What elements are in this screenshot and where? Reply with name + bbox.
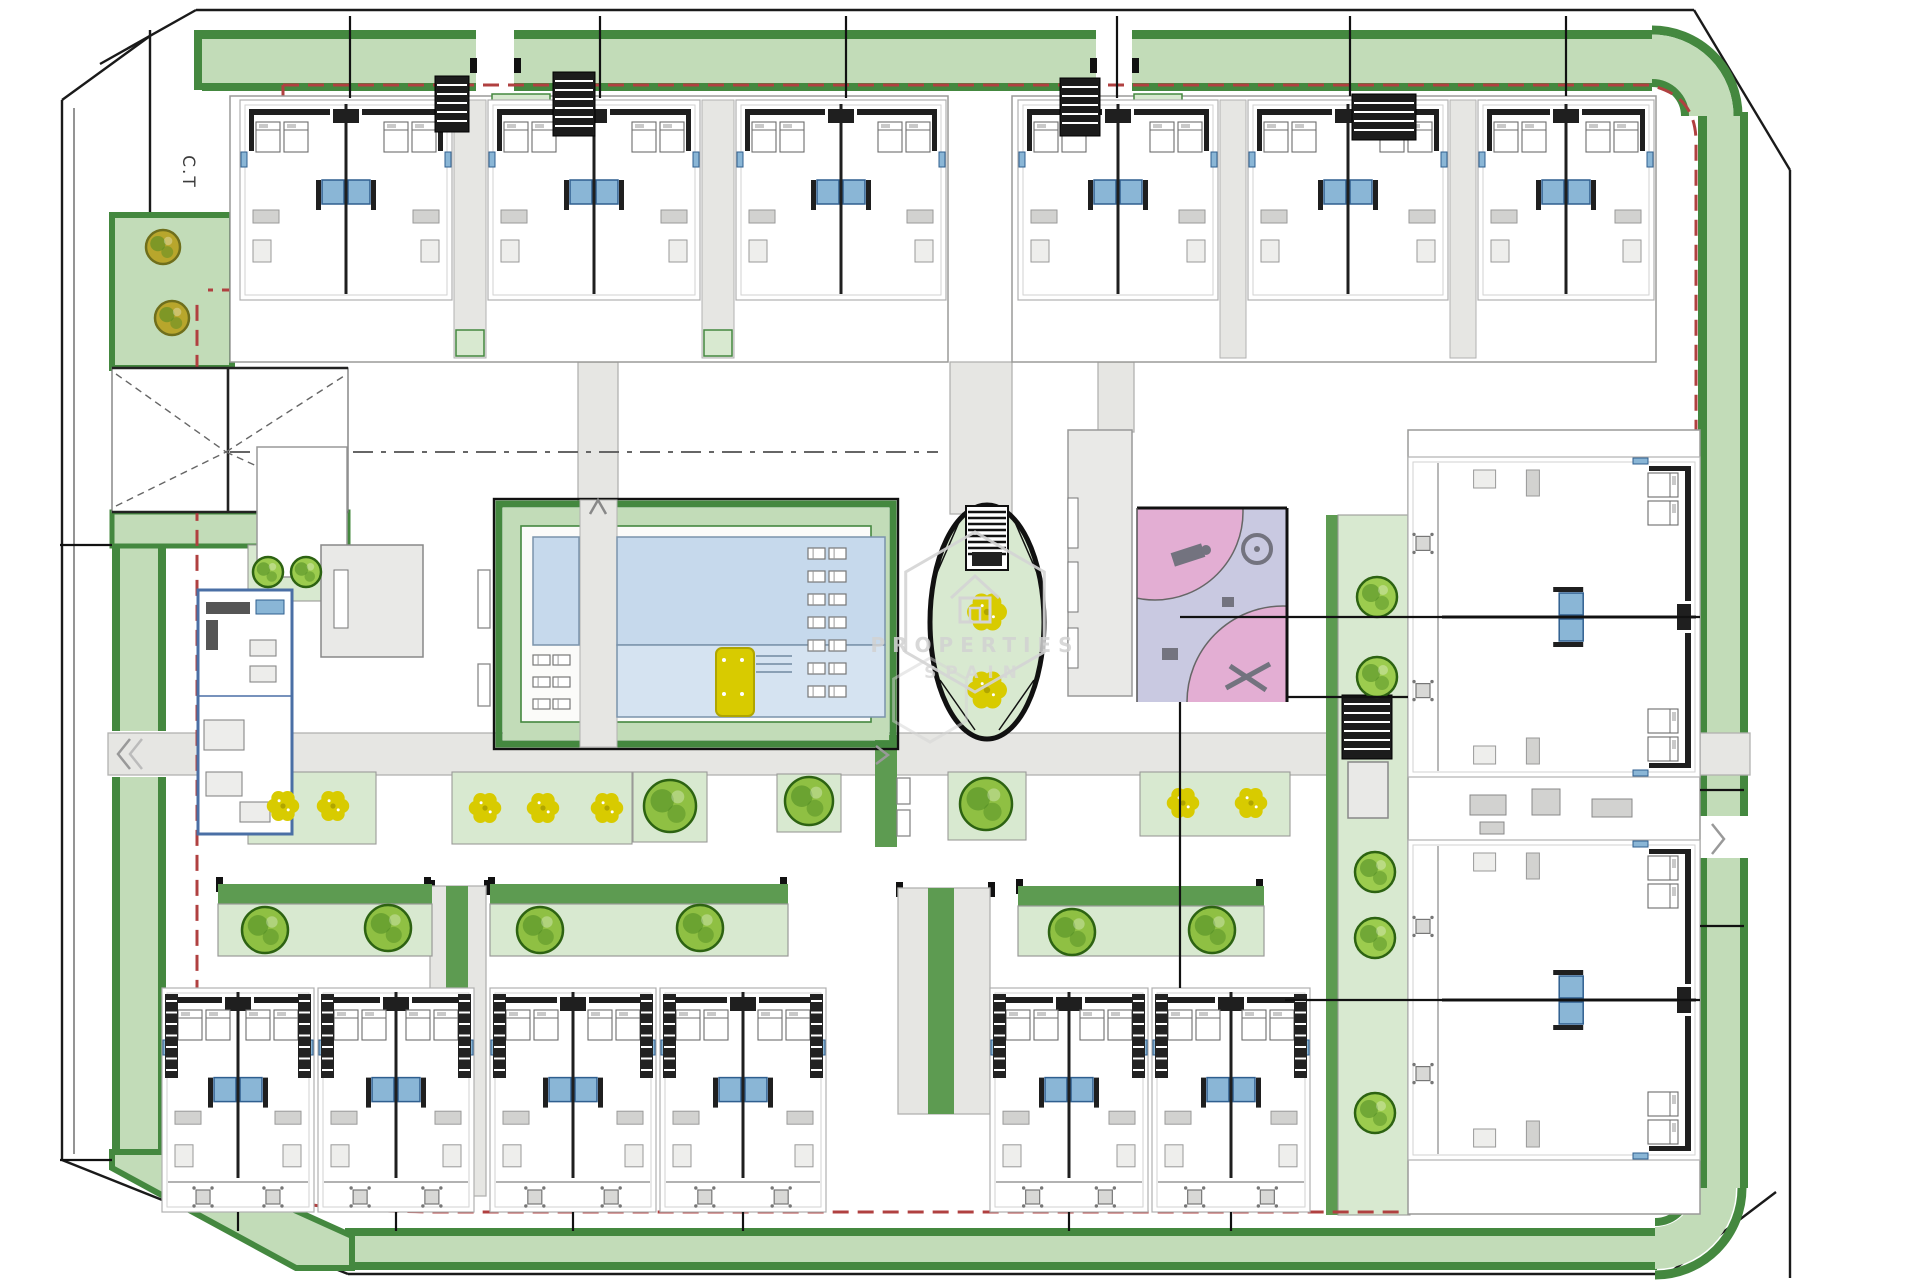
shape [857,109,937,115]
planting-pad [1140,772,1290,836]
shape [1525,124,1534,128]
kitchen-icon [501,240,519,262]
sofa-icon [331,1111,357,1124]
shape [1487,109,1492,151]
kitchen-icon [283,1145,301,1167]
kitchen-icon [175,1145,193,1167]
gate-post [1090,58,1097,73]
shape [932,109,937,151]
stair-core-icon [1352,94,1416,140]
sofa-icon [1526,1121,1539,1147]
door-slot [1068,562,1078,612]
shape [499,997,557,1003]
sofa-icon [787,1111,813,1124]
bathroom [843,180,865,204]
shape [1685,633,1691,768]
sofa-icon [1179,210,1205,223]
lounger-icon [808,640,825,651]
shape [1591,180,1596,210]
shape [1039,1078,1044,1108]
block-separator [454,100,486,358]
kitchen-icon [669,240,687,262]
lounger-icon [808,571,825,582]
shape [1441,152,1447,167]
bench-icon [897,810,910,836]
kitchen-icon [795,1145,813,1167]
shape [1633,841,1648,847]
bathroom [1207,1078,1229,1102]
duplex-unit-top [1478,100,1654,300]
bathroom [398,1078,420,1102]
bathroom [1542,180,1564,204]
lounger-icon [829,686,846,697]
shape [241,152,247,167]
shape [409,1012,418,1016]
core-annex [1348,762,1388,818]
shape [1672,740,1676,749]
gate-post [470,58,477,73]
band-segment [345,1228,1657,1236]
swimming-pool [533,537,579,645]
tree-icon [291,557,321,587]
bathroom [1559,976,1583,998]
bathroom [372,1078,394,1102]
kitchen-icon [1474,1129,1496,1147]
tree-icon [644,780,696,832]
furniture [206,602,250,614]
duplex-unit-top [240,100,452,300]
tree-icon [677,905,723,951]
sofa-icon [907,210,933,223]
shape [316,180,321,210]
furniture [206,620,218,650]
shape [783,124,792,128]
shape [1647,152,1653,167]
band-segment [112,546,120,1162]
shape [693,152,699,167]
bathroom [1559,1002,1583,1024]
block-separator [1220,100,1246,358]
table-icon [1188,1190,1202,1204]
sofa-icon [435,1111,461,1124]
shape [254,997,305,1003]
band-segment [202,30,1652,39]
sofa-icon [1526,470,1539,496]
shape [1672,476,1676,485]
bathroom [1350,180,1372,204]
table-icon [425,1190,439,1204]
bench-icon [897,778,910,804]
shape [1672,1123,1676,1132]
equipment [256,600,284,614]
table-icon [604,1190,618,1204]
sofa-icon [1526,853,1539,879]
shape [761,1012,770,1016]
shape [1134,109,1209,115]
bathroom [1559,593,1583,615]
shape [619,1012,628,1016]
block-separator [1450,100,1476,358]
sofa-icon [413,210,439,223]
bathroom [575,1078,597,1102]
furniture [1592,799,1632,817]
sofa-icon [275,1111,301,1124]
planter-cap [490,884,788,904]
shape [713,1078,718,1108]
shape [1201,1078,1206,1108]
tree-icon [242,907,288,953]
pool-walkway [580,500,617,747]
shape [1582,109,1645,115]
bathroom [570,180,592,204]
duplex-unit-top [1248,100,1448,300]
duplex-unit-bottom [490,988,656,1212]
shape [1245,1012,1254,1016]
shape [811,180,816,210]
bathroom [719,1078,741,1102]
lounger-icon [553,677,570,687]
band-segment [1707,112,1740,1188]
shape [768,1078,773,1108]
shape [1672,504,1676,513]
kitchen-icon [443,1145,461,1167]
green-patch [456,330,484,356]
band-segment [345,1236,1657,1262]
kitchen-icon [1474,853,1496,871]
shape [669,997,727,1003]
shape [1672,887,1676,896]
shape [1479,152,1485,167]
kitchen-icon [1031,240,1049,262]
shape [1161,997,1215,1003]
shape [421,1078,426,1108]
table-icon [1098,1190,1112,1204]
sofa-icon [1491,210,1517,223]
tree-icon [1189,907,1235,953]
shape [598,1078,603,1108]
watermark-text-top: PROPERTIES [870,633,1079,657]
bathroom [1045,1078,1067,1102]
shape [1199,1012,1208,1016]
shape [327,997,380,1003]
table-icon [1026,1190,1040,1204]
shape [1256,1078,1261,1108]
lounger-icon [808,663,825,674]
tree-icon [1355,852,1395,892]
shape [1589,124,1598,128]
shape [564,180,569,210]
bathroom [1120,180,1142,204]
shape [1204,109,1209,151]
shape [1009,1012,1018,1016]
shape [1037,1012,1046,1016]
lounger-icon [533,655,550,665]
shape [208,1078,213,1108]
gate-post [514,58,521,73]
furniture [1480,822,1504,834]
sofa-icon [1261,210,1287,223]
planter-cap [1018,886,1264,906]
shape [1318,180,1323,210]
shape [1487,109,1550,115]
lounger-icon [829,594,846,605]
kitchen-icon [749,240,767,262]
shape [287,124,296,128]
lounger-icon [829,548,846,559]
shape [1434,109,1439,151]
shape [489,152,495,167]
duplex-unit-bottom [318,988,474,1212]
lounger-icon [808,548,825,559]
shape [415,124,424,128]
green-strip [1326,515,1338,1215]
green-strip [928,888,954,1114]
band-segment [1740,112,1748,1188]
tree-icon [517,907,563,953]
tree-icon [1357,657,1397,697]
kitchen-icon [253,240,271,262]
shape [249,1012,258,1016]
sofa-icon [1003,1111,1029,1124]
bathroom [1568,180,1590,204]
lounger-icon [553,655,570,665]
shape [1553,587,1583,592]
shape [707,1012,716,1016]
bathroom [348,180,370,204]
play-bench-icon [1222,597,1234,607]
tree-icon [1357,577,1397,617]
shape [1649,1146,1691,1151]
kitchen-icon [503,1145,521,1167]
tree-icon [1355,1093,1395,1133]
bench-icon [478,570,490,628]
shape [1553,1025,1583,1030]
shape [1672,712,1676,721]
shape [537,1012,546,1016]
parasol-icon [716,648,754,716]
shape [1672,1095,1676,1104]
shape [497,109,502,151]
table-icon [1416,1067,1430,1081]
lounger-icon [808,686,825,697]
duplex-unit-top [736,100,946,300]
shape [362,109,443,115]
shape [635,124,644,128]
shape [1153,124,1162,128]
table-icon [1260,1190,1274,1204]
plot-label: C.T [178,155,198,189]
lounger-icon [829,617,846,628]
planter-cap [218,884,432,904]
shape [759,997,817,1003]
shape [1181,124,1190,128]
bathroom [1559,619,1583,641]
band-segment [202,39,1652,83]
lounger-icon [553,699,570,709]
kitchen-icon [421,240,439,262]
bathroom [1071,1078,1093,1102]
kitchen-icon [331,1145,349,1167]
shape [1019,152,1025,167]
stair-landing [972,552,1002,566]
shape [437,1012,446,1016]
shape [999,997,1053,1003]
shape [1257,109,1262,151]
kitchen-icon [1279,1145,1297,1167]
bathroom [817,180,839,204]
table-icon [774,1190,788,1204]
shape [371,180,376,210]
shape [1497,124,1506,128]
kitchen-icon [915,240,933,262]
bathroom [214,1078,236,1102]
kitchen-icon [1491,240,1509,262]
desk-icon [250,666,276,682]
kitchen-icon [1474,746,1496,764]
duplex-unit-top [1018,100,1218,300]
bathroom [1233,1078,1255,1102]
tree-icon [155,301,189,335]
shape [1685,1016,1691,1151]
shape [277,1012,286,1016]
sofa-icon [1109,1111,1135,1124]
block-separator [702,100,734,358]
door-slot [334,570,348,628]
tree-icon [960,778,1012,830]
shape [789,1012,798,1016]
kitchen-icon [673,1145,691,1167]
band-segment [120,546,158,1162]
sofa-icon [501,210,527,223]
band-gap [1096,27,1132,93]
walkway [578,362,618,502]
duplex-unit-bottom [162,988,314,1212]
shape [1373,180,1378,210]
shape [263,1078,268,1108]
tree-icon [1355,918,1395,958]
shape [1267,124,1276,128]
sofa-icon [617,1111,643,1124]
shape [1111,1012,1120,1016]
shape [1249,152,1255,167]
tree-icon [253,557,283,587]
shape [1633,458,1648,464]
desk-icon [250,640,276,656]
sofa-icon [175,1111,201,1124]
sofa-icon [1615,210,1641,223]
shape [1295,124,1304,128]
shape [1685,466,1691,601]
sofa-icon [1271,1111,1297,1124]
shape [1211,152,1217,167]
bathroom [549,1078,571,1102]
table-icon [1416,919,1430,933]
kitchen-icon [1187,240,1205,262]
desk-icon [240,802,270,822]
watermark-text-bottom: SPAIN [924,663,1026,683]
shape [1649,763,1691,768]
shape [1027,109,1032,151]
kitchen-icon [1165,1145,1183,1167]
shape [1633,770,1648,776]
shape [543,1078,548,1108]
kitchen-icon [1003,1145,1021,1167]
tree-icon [365,905,411,951]
sofa-icon [253,210,279,223]
table-icon [266,1190,280,1204]
shape [1037,124,1046,128]
shape [1083,1012,1092,1016]
duplex-unit-bottom [990,988,1148,1212]
shape [679,1012,688,1016]
bathroom [1094,180,1116,204]
sofa-icon [673,1111,699,1124]
bathroom [596,180,618,204]
band-segment [194,30,202,90]
duplex-unit-bottom [1152,988,1310,1212]
kitchen-icon [1474,470,1496,488]
table-icon [353,1190,367,1204]
shape [1143,180,1148,210]
shape [1649,849,1691,854]
lounger-icon [829,640,846,651]
tree-icon [785,777,833,825]
shape [412,997,465,1003]
lounger-icon [808,594,825,605]
band-segment [345,1262,1657,1270]
shape [1273,1012,1282,1016]
furniture [1532,789,1560,815]
shape [1553,642,1583,647]
duplex-unit-bottom [660,988,826,1212]
shape [387,124,396,128]
green-patch [704,330,732,356]
shape [1640,109,1645,151]
tree-icon [1049,909,1095,955]
table-icon [698,1190,712,1204]
table-icon [1416,684,1430,698]
table-icon [1416,536,1430,550]
green-strip [875,735,897,847]
shape [591,1012,600,1016]
shape [1685,849,1691,984]
shape [259,124,268,128]
shape [755,124,764,128]
lounger-icon [829,663,846,674]
sofa-icon [749,210,775,223]
kitchen-icon [625,1145,643,1167]
site-plan-page: C.T PROPERTIES SPAIN [0,0,1920,1280]
bench-icon [478,664,490,706]
bathroom [322,180,344,204]
lounger-icon [808,617,825,628]
sofa-icon [1031,210,1057,223]
shape [507,124,516,128]
shape [663,124,672,128]
shape [1672,859,1676,868]
shape [909,124,918,128]
shape [509,1012,518,1016]
lounger-icon [829,571,846,582]
sofa-icon [1409,210,1435,223]
shape [1085,997,1139,1003]
shape [589,997,647,1003]
sofa-icon [1165,1111,1191,1124]
site-plan-canvas: C.T PROPERTIES SPAIN [0,0,1920,1280]
lounger-icon [533,699,550,709]
kitchen-icon [1261,240,1279,262]
kitchen-icon [1417,240,1435,262]
